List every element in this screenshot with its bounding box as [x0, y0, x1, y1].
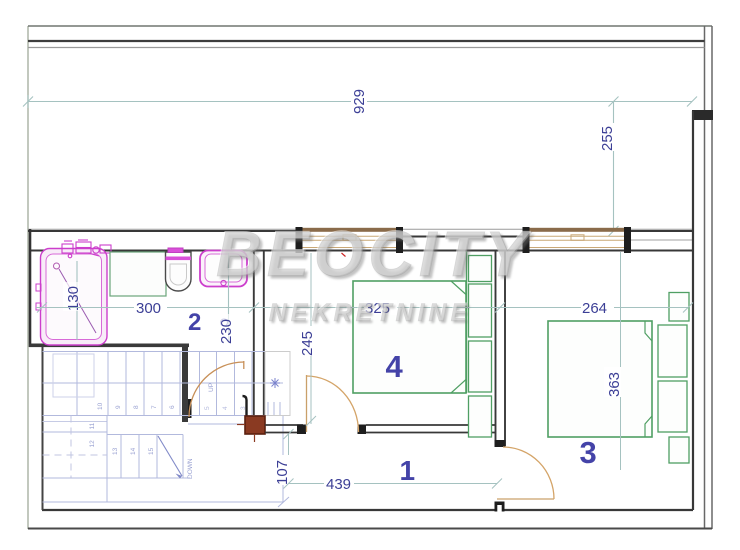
svg-text:439: 439 [326, 476, 351, 493]
svg-text:255: 255 [599, 126, 616, 151]
svg-text:13: 13 [112, 447, 119, 455]
svg-text:4: 4 [222, 406, 229, 410]
svg-text:107: 107 [274, 460, 291, 485]
svg-text:300: 300 [136, 300, 161, 317]
svg-text:UP: UP [208, 383, 215, 392]
svg-text:230: 230 [218, 319, 235, 344]
svg-text:7: 7 [151, 405, 158, 409]
svg-text:15: 15 [148, 447, 155, 455]
svg-text:3: 3 [580, 435, 597, 470]
svg-text:245: 245 [299, 331, 316, 356]
svg-text:NEKRETNINE: NEKRETNINE [269, 299, 472, 327]
svg-text:1: 1 [400, 455, 416, 486]
svg-text:11: 11 [89, 422, 96, 429]
svg-text:14: 14 [130, 447, 137, 455]
svg-text:12: 12 [89, 440, 96, 448]
svg-text:2: 2 [188, 309, 201, 336]
svg-text:264: 264 [582, 300, 607, 317]
svg-text:4: 4 [386, 349, 404, 384]
svg-text:DOWN: DOWN [187, 458, 194, 479]
svg-text:BEOCITY: BEOCITY [216, 218, 533, 290]
svg-text:363: 363 [606, 372, 623, 397]
svg-text:10: 10 [97, 402, 104, 410]
svg-text:6: 6 [169, 405, 176, 409]
svg-text:5: 5 [204, 406, 211, 410]
svg-text:929: 929 [351, 89, 368, 114]
svg-text:9: 9 [115, 405, 122, 409]
svg-text:8: 8 [133, 405, 140, 409]
